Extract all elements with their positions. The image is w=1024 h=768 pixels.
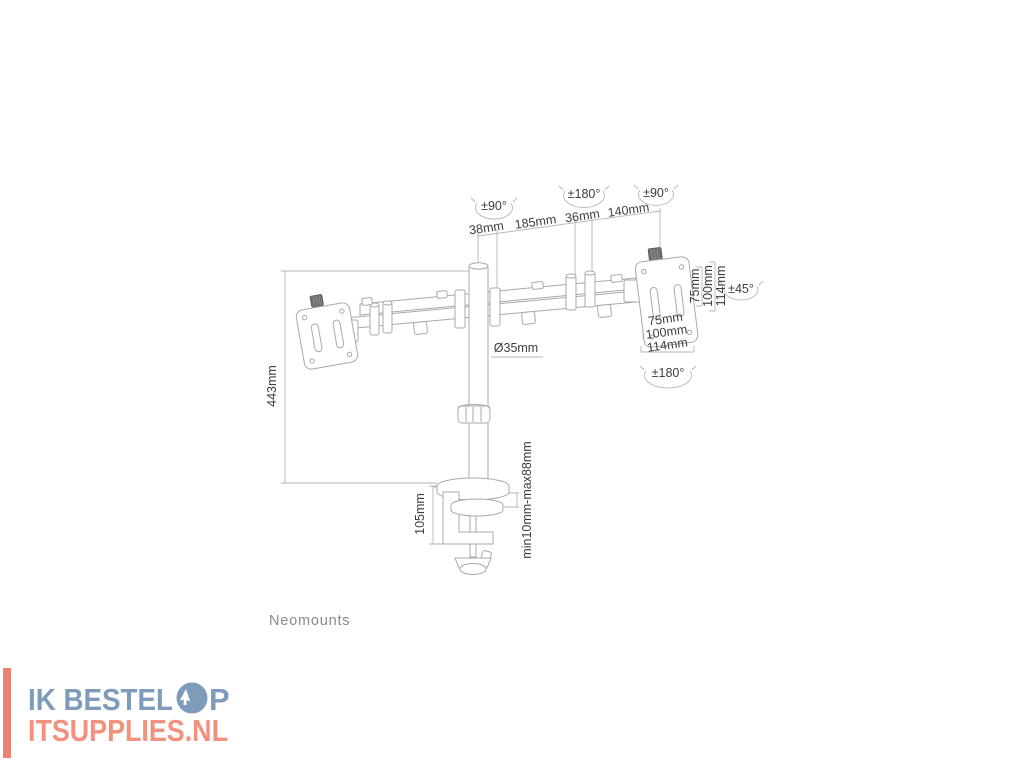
vesa-v100-label: 100mm <box>701 265 715 307</box>
watermark-logo: IK BESTEL P ITSUPPLIES.NL <box>3 668 230 758</box>
pole-tube <box>469 266 488 483</box>
watermark-line1-suffix: P <box>209 682 230 717</box>
monitor-mount-technical-drawing: ±90° ±180° ±90° 38mm 185mm 36mm 140mm 44… <box>0 0 1024 768</box>
tilt-label: ±45° <box>728 282 754 296</box>
clamp-screw-rod-lower <box>470 544 476 557</box>
swivel-label: ±180° <box>652 366 685 380</box>
pole-collar <box>458 405 490 423</box>
pole-bracket-right <box>490 288 500 326</box>
pole <box>455 263 500 483</box>
rotation-label-mid: ±180° <box>568 187 601 201</box>
dim-label-36mm: 36mm <box>564 207 600 226</box>
desk-clamp <box>437 478 509 575</box>
pole-top <box>469 263 488 269</box>
rotation-label-right: ±90° <box>643 186 669 200</box>
rotation-label-left: ±90° <box>481 199 507 213</box>
vesa-v75-label: 75mm <box>688 269 702 304</box>
watermark-line2: ITSUPPLIES.NL <box>28 713 228 748</box>
cursor-circle <box>177 683 208 714</box>
brand-wordmark: Neomounts <box>269 613 350 629</box>
watermark-line1-prefix: IK BESTEL <box>28 682 173 717</box>
left-vesa-plate <box>293 290 359 370</box>
vesa-v114-label: 114mm <box>714 266 728 307</box>
product-diagram-page: ±90° ±180° ±90° 38mm 185mm 36mm 140mm 44… <box>0 0 1024 768</box>
clamp-lower-pad <box>451 499 503 516</box>
dim-label-140mm: 140mm <box>607 200 650 220</box>
clamp-range-label: min10mm-max88mm <box>520 441 534 558</box>
clamp-height-label: 105mm <box>413 493 427 535</box>
pole-diameter-label: Ø35mm <box>494 341 538 355</box>
pole-bracket-left <box>455 290 465 328</box>
dim-label-185mm: 185mm <box>514 212 557 232</box>
dim-label-38mm: 38mm <box>468 219 504 238</box>
pole-height-label: 443mm <box>265 365 279 407</box>
watermark-bar <box>3 668 11 758</box>
left-vesa-body <box>295 302 359 370</box>
dimension-labels: ±90° ±180° ±90° 38mm 185mm 36mm 140mm 44… <box>265 186 754 559</box>
